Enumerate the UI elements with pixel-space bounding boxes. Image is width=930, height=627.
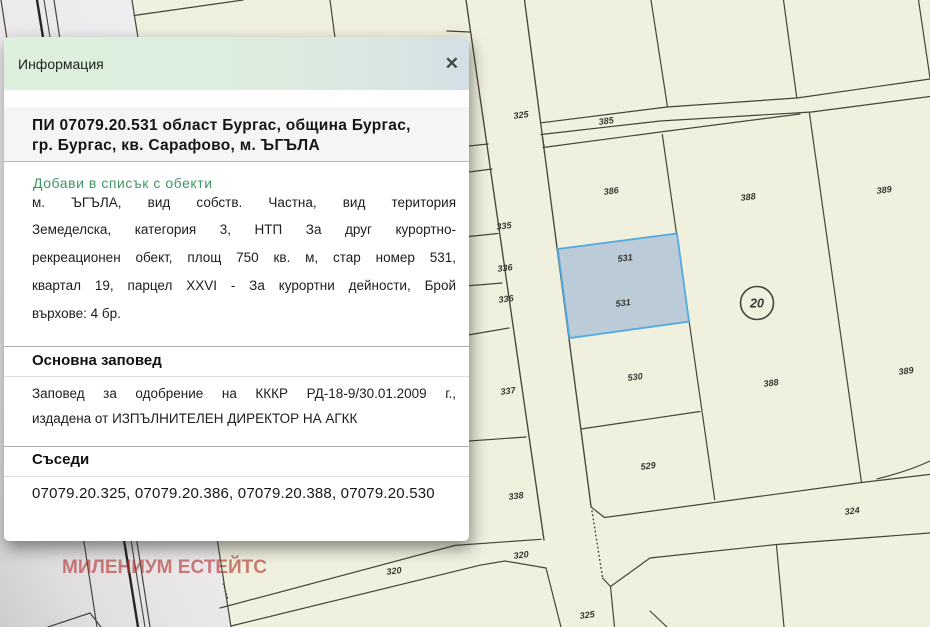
svg-text:531: 531 <box>617 252 633 264</box>
svg-text:385: 385 <box>598 115 615 127</box>
svg-text:531: 531 <box>615 297 631 309</box>
svg-text:389: 389 <box>876 184 892 196</box>
svg-text:324: 324 <box>844 505 860 517</box>
svg-text:320: 320 <box>386 565 402 577</box>
svg-text:320: 320 <box>513 549 529 561</box>
svg-text:20: 20 <box>749 297 764 311</box>
svg-text:336: 336 <box>497 262 514 274</box>
svg-text:338: 338 <box>508 490 524 502</box>
svg-text:529: 529 <box>640 460 656 472</box>
svg-text:389: 389 <box>898 365 914 377</box>
svg-text:325: 325 <box>579 609 596 621</box>
svg-text:388: 388 <box>763 377 779 389</box>
svg-text:530: 530 <box>627 371 643 383</box>
svg-text:325: 325 <box>513 109 530 121</box>
svg-text:337: 337 <box>500 385 517 397</box>
svg-text:386: 386 <box>603 185 620 197</box>
svg-text:335: 335 <box>496 220 513 232</box>
svg-text:336: 336 <box>498 293 515 305</box>
svg-text:388: 388 <box>740 191 756 203</box>
